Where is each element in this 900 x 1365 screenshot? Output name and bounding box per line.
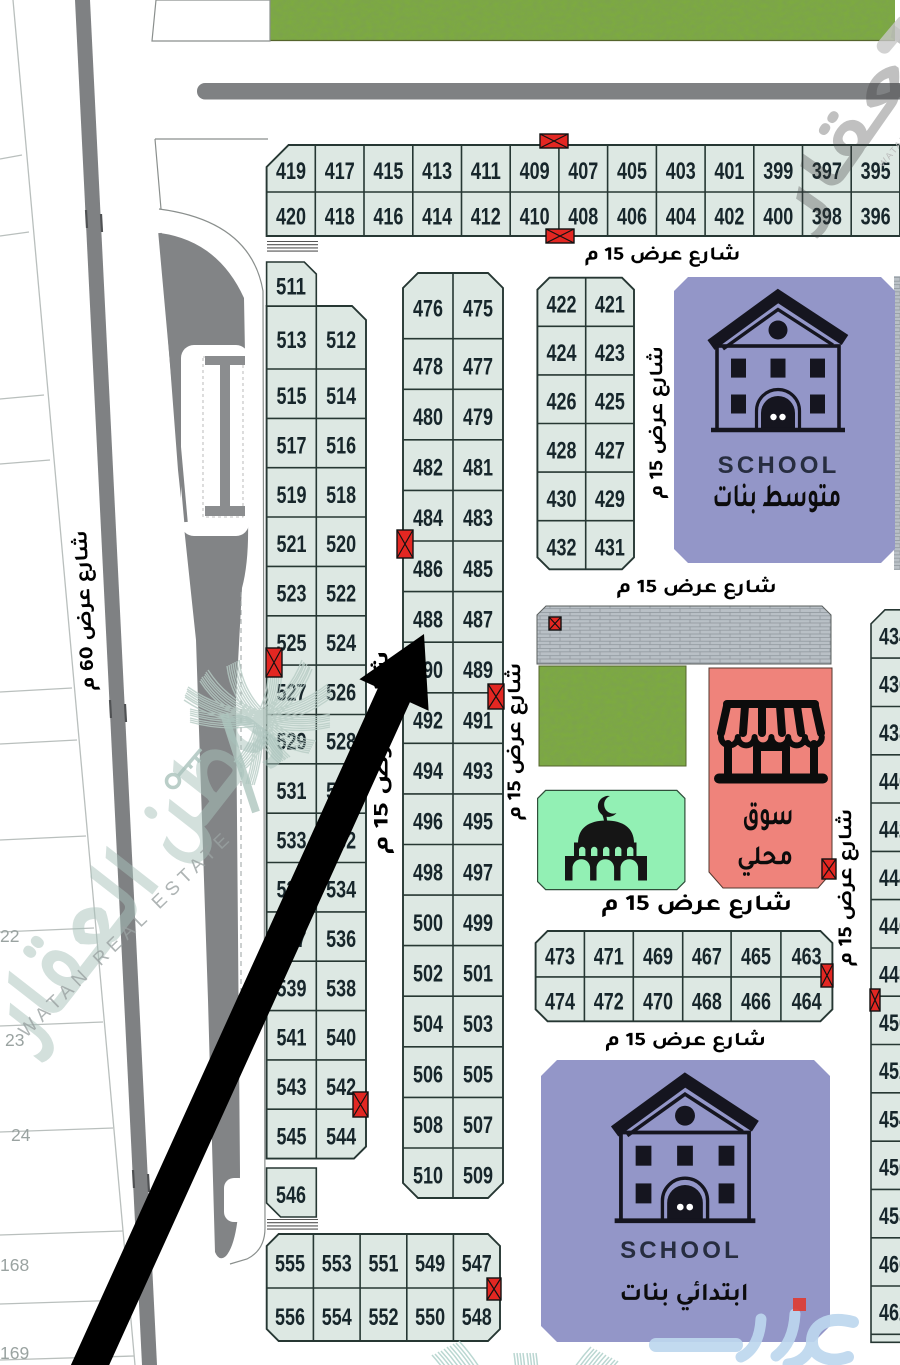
svg-text:424: 424 — [547, 340, 577, 367]
svg-text:556: 556 — [275, 1304, 305, 1331]
svg-text:478: 478 — [413, 354, 443, 381]
svg-text:553: 553 — [322, 1251, 352, 1278]
svg-text:486: 486 — [413, 556, 443, 583]
svg-text:505: 505 — [463, 1062, 493, 1089]
svg-text:417: 417 — [325, 158, 355, 185]
svg-text:503: 503 — [463, 1011, 493, 1038]
svg-text:516: 516 — [326, 433, 356, 460]
svg-text:554: 554 — [322, 1304, 352, 1331]
svg-text:400: 400 — [763, 204, 793, 231]
svg-text:496: 496 — [413, 809, 443, 836]
svg-text:456: 456 — [879, 1155, 900, 1182]
svg-text:430: 430 — [547, 486, 577, 513]
svg-text:506: 506 — [413, 1062, 443, 1089]
svg-text:463: 463 — [792, 944, 822, 971]
svg-text:507: 507 — [463, 1112, 493, 1139]
svg-text:407: 407 — [568, 158, 598, 185]
svg-text:513: 513 — [277, 327, 307, 354]
svg-text:406: 406 — [617, 204, 647, 231]
svg-text:421: 421 — [595, 292, 625, 319]
svg-text:423: 423 — [595, 340, 625, 367]
svg-text:501: 501 — [463, 961, 493, 988]
svg-text:22: 22 — [0, 926, 19, 946]
svg-text:484: 484 — [413, 505, 443, 532]
svg-text:465: 465 — [741, 944, 771, 971]
svg-text:458: 458 — [879, 1203, 900, 1230]
svg-text:500: 500 — [413, 910, 443, 937]
svg-text:413: 413 — [422, 158, 452, 185]
svg-text:511: 511 — [276, 274, 306, 301]
svg-text:485: 485 — [463, 556, 493, 583]
svg-text:420: 420 — [276, 204, 306, 231]
svg-text:444: 444 — [879, 865, 900, 892]
svg-text:534: 534 — [326, 877, 356, 904]
svg-text:509: 509 — [463, 1163, 493, 1190]
svg-text:540: 540 — [326, 1025, 356, 1052]
svg-text:410: 410 — [520, 204, 550, 231]
svg-text:425: 425 — [595, 389, 625, 416]
svg-text:551: 551 — [369, 1251, 399, 1278]
svg-text:521: 521 — [277, 531, 307, 558]
svg-text:545: 545 — [277, 1123, 307, 1150]
svg-text:489: 489 — [463, 657, 493, 684]
svg-text:396: 396 — [861, 204, 891, 231]
svg-text:464: 464 — [792, 989, 822, 1016]
svg-text:543: 543 — [277, 1074, 307, 1101]
svg-text:549: 549 — [415, 1251, 445, 1278]
svg-text:546: 546 — [276, 1182, 306, 1209]
svg-text:427: 427 — [595, 437, 625, 464]
svg-text:452: 452 — [879, 1058, 900, 1085]
svg-text:552: 552 — [369, 1304, 399, 1331]
svg-text:477: 477 — [463, 354, 493, 381]
svg-text:487: 487 — [463, 606, 493, 633]
svg-text:497: 497 — [463, 859, 493, 886]
svg-text:408: 408 — [568, 204, 598, 231]
svg-text:473: 473 — [545, 944, 575, 971]
svg-text:536: 536 — [326, 926, 356, 953]
svg-text:422: 422 — [547, 292, 577, 319]
svg-text:476: 476 — [413, 295, 443, 322]
svg-text:547: 547 — [462, 1251, 492, 1278]
svg-text:438: 438 — [879, 720, 900, 747]
svg-text:480: 480 — [413, 404, 443, 431]
svg-text:524: 524 — [326, 630, 356, 657]
svg-text:482: 482 — [413, 455, 443, 482]
svg-text:523: 523 — [277, 581, 307, 608]
svg-text:414: 414 — [422, 204, 452, 231]
svg-text:494: 494 — [413, 758, 443, 785]
svg-text:498: 498 — [413, 859, 443, 886]
svg-text:434: 434 — [879, 623, 900, 650]
svg-text:436: 436 — [879, 672, 900, 699]
svg-text:468: 468 — [692, 989, 722, 1016]
svg-text:483: 483 — [463, 505, 493, 532]
svg-text:472: 472 — [594, 989, 624, 1016]
svg-text:426: 426 — [547, 389, 577, 416]
svg-text:533: 533 — [277, 827, 307, 854]
svg-text:479: 479 — [463, 404, 493, 431]
svg-text:522: 522 — [326, 581, 356, 608]
svg-text:518: 518 — [326, 482, 356, 509]
svg-text:502: 502 — [413, 961, 443, 988]
svg-text:548: 548 — [462, 1304, 492, 1331]
svg-text:520: 520 — [326, 531, 356, 558]
svg-text:555: 555 — [275, 1251, 305, 1278]
svg-text:550: 550 — [415, 1304, 445, 1331]
svg-text:470: 470 — [643, 989, 673, 1016]
svg-text:429: 429 — [595, 486, 625, 513]
svg-text:512: 512 — [326, 327, 356, 354]
svg-text:402: 402 — [714, 204, 744, 231]
svg-text:542: 542 — [326, 1074, 356, 1101]
svg-text:440: 440 — [879, 768, 900, 795]
svg-text:510: 510 — [413, 1163, 443, 1190]
svg-text:488: 488 — [413, 606, 443, 633]
svg-text:399: 399 — [763, 158, 793, 185]
svg-text:544: 544 — [326, 1123, 356, 1150]
svg-text:450: 450 — [879, 1010, 900, 1037]
svg-text:SCHOOL: SCHOOL — [620, 1237, 742, 1264]
svg-text:515: 515 — [277, 383, 307, 410]
svg-text:431: 431 — [595, 535, 625, 562]
svg-text:168: 168 — [0, 1255, 29, 1275]
svg-text:454: 454 — [879, 1106, 900, 1133]
svg-text:481: 481 — [463, 455, 493, 482]
svg-text:508: 508 — [413, 1112, 443, 1139]
svg-text:442: 442 — [879, 817, 900, 844]
svg-text:517: 517 — [277, 433, 307, 460]
svg-text:491: 491 — [463, 708, 493, 735]
svg-text:SCHOOL: SCHOOL — [718, 452, 840, 479]
svg-text:405: 405 — [617, 158, 647, 185]
svg-text:462: 462 — [879, 1300, 900, 1327]
svg-text:24: 24 — [11, 1125, 31, 1145]
svg-text:471: 471 — [594, 944, 624, 971]
svg-text:448: 448 — [879, 962, 900, 989]
svg-text:474: 474 — [545, 989, 575, 1016]
svg-text:412: 412 — [471, 204, 501, 231]
svg-text:493: 493 — [463, 758, 493, 785]
svg-text:495: 495 — [463, 809, 493, 836]
svg-text:467: 467 — [692, 944, 722, 971]
svg-text:401: 401 — [714, 158, 744, 185]
svg-text:460: 460 — [879, 1251, 900, 1278]
svg-text:499: 499 — [463, 910, 493, 937]
svg-text:538: 538 — [326, 975, 356, 1002]
svg-text:415: 415 — [373, 158, 403, 185]
svg-text:411: 411 — [471, 158, 501, 185]
svg-text:531: 531 — [277, 778, 307, 805]
svg-text:504: 504 — [413, 1011, 443, 1038]
svg-text:169: 169 — [0, 1343, 29, 1363]
svg-text:403: 403 — [666, 158, 696, 185]
svg-text:541: 541 — [277, 1025, 307, 1052]
svg-text:519: 519 — [277, 482, 307, 509]
svg-text:469: 469 — [643, 944, 673, 971]
svg-text:419: 419 — [276, 158, 306, 185]
svg-text:492: 492 — [413, 708, 443, 735]
svg-text:416: 416 — [373, 204, 403, 231]
svg-text:409: 409 — [520, 158, 550, 185]
svg-text:475: 475 — [463, 295, 493, 322]
svg-text:466: 466 — [741, 989, 771, 1016]
svg-text:514: 514 — [326, 383, 356, 410]
svg-text:446: 446 — [879, 913, 900, 940]
svg-text:432: 432 — [547, 535, 577, 562]
svg-text:428: 428 — [547, 437, 577, 464]
svg-text:418: 418 — [325, 204, 355, 231]
svg-text:404: 404 — [666, 204, 696, 231]
